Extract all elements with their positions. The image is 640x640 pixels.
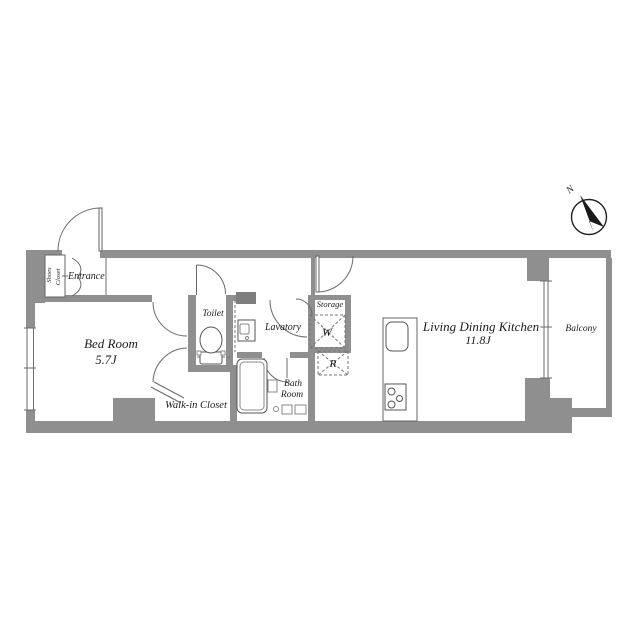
compass-needle-icon (580, 195, 604, 233)
vanity-faucet (246, 337, 249, 340)
bath-fixture-2 (295, 405, 306, 414)
entrance-label: Entrance (67, 271, 105, 282)
labels: Shoes Closet Entrance Bed Room 5.7J Toil… (46, 267, 597, 411)
wic-label: Walk-in Closet (165, 400, 228, 411)
toilet-door-arc (197, 265, 226, 294)
stove-burner-3 (388, 401, 395, 408)
storage-label: Storage (317, 299, 344, 309)
bedroom-label: Bed Room (84, 336, 138, 351)
wall-step-block (550, 398, 572, 421)
wall-toilet-left (188, 295, 196, 372)
ldk-balcony-window (540, 281, 552, 378)
wall-pillar-right-bottom (525, 378, 550, 421)
wall-wic-bath (230, 365, 237, 421)
compass-north-label: N (564, 183, 578, 197)
toilet-tab-right (221, 351, 225, 355)
bath-fixture-1 (282, 405, 292, 414)
toilet-label: Toilet (202, 309, 224, 319)
bath-drain (274, 407, 279, 412)
bedroom-door-arc (153, 302, 187, 336)
balcony-rail-bottom (572, 408, 612, 417)
wall-ldk-stub (311, 256, 315, 295)
wall-bottom (26, 421, 572, 433)
ldk-door-leaf (316, 256, 319, 292)
shoes-closet-label-2: Closet (55, 269, 62, 286)
bedroom-window (24, 328, 36, 410)
bathtub-inner (240, 362, 264, 410)
kitchen-sink (386, 322, 408, 351)
ldk-label: Living Dining Kitchen (422, 319, 539, 334)
duct-shaft (236, 292, 256, 304)
wic-door-line-2 (154, 382, 184, 398)
compass: N (564, 183, 607, 235)
wic-door-arc (153, 348, 187, 382)
floor-plan: Shoes Closet Entrance Bed Room 5.7J Toil… (0, 0, 640, 640)
ldk-door-arc (318, 256, 354, 292)
wall-lav-bath-right (290, 352, 308, 358)
entrance-door-leaf (99, 208, 102, 251)
fridge-label: R (329, 358, 337, 370)
washer-label: W (322, 325, 333, 339)
toilet-tab-left (197, 351, 201, 355)
bedroom-size-label: 5.7J (95, 353, 118, 367)
entrance-door-arc (58, 208, 99, 251)
toilet-bowl (200, 327, 222, 353)
wall-toilet-bottom (196, 365, 226, 372)
wall-pillar-right-top (527, 255, 549, 281)
balcony-label: Balcony (565, 324, 597, 334)
wall-left-lower (26, 410, 35, 421)
stove-burner-2 (397, 396, 403, 402)
ldk-size-label: 11.8J (465, 333, 491, 347)
wall-storage-right (345, 295, 351, 353)
stove-burner-1 (388, 388, 395, 395)
toilet-tank (200, 352, 222, 364)
bath-counter (268, 380, 277, 392)
wall-pillar-wic (113, 398, 155, 421)
floorplan-page: Shoes Closet Entrance Bed Room 5.7J Toil… (0, 0, 640, 640)
wall-left-upper (26, 303, 35, 328)
bathroom-label-1: Bath (284, 379, 302, 389)
lavatory-label: Lavatory (264, 322, 302, 333)
wall-lav-bath-left (237, 352, 262, 358)
bathroom-label-2: Room (280, 390, 303, 400)
vanity-basin (240, 324, 249, 334)
wall-toilet-right (226, 295, 233, 372)
shoes-closet-label-1: Shoes (46, 267, 53, 283)
balcony-rail-right (606, 258, 612, 412)
